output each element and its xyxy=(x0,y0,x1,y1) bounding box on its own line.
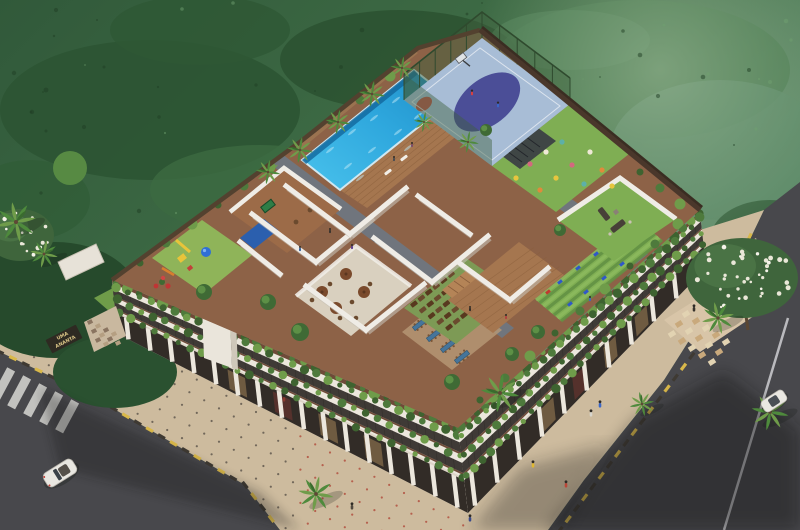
pedestrian xyxy=(590,409,593,416)
paving-dot xyxy=(181,404,183,406)
hedge xyxy=(576,307,585,316)
paving-dot xyxy=(314,510,316,512)
hanging-plants xyxy=(160,304,167,311)
blossom xyxy=(706,272,709,275)
blossom xyxy=(785,280,790,285)
hanging-plants xyxy=(409,431,416,438)
paving-dot xyxy=(255,478,257,480)
hanging-plants xyxy=(242,338,250,346)
hanging-plants xyxy=(671,237,679,245)
table xyxy=(368,282,373,287)
hanging-plants xyxy=(566,335,571,340)
hanging-plants xyxy=(269,382,277,390)
hanging-plants xyxy=(113,294,122,303)
hanging-plants xyxy=(244,355,251,362)
hanging-plants xyxy=(324,376,333,385)
hanging-plants xyxy=(626,315,632,321)
hanging-plants xyxy=(293,395,300,402)
roof-person xyxy=(299,246,301,251)
hedge xyxy=(675,199,686,210)
hanging-plants xyxy=(374,415,381,422)
paving-dot xyxy=(285,527,287,529)
blossom xyxy=(723,277,726,280)
blossom xyxy=(707,258,712,263)
chair xyxy=(463,349,465,351)
bean-bag xyxy=(609,183,614,188)
blossom xyxy=(746,277,750,281)
hanging-plants xyxy=(695,212,705,222)
hanging-plants xyxy=(466,423,473,430)
hanging-plants xyxy=(394,406,403,415)
blossom xyxy=(26,250,29,253)
paving-dot xyxy=(203,433,205,435)
chair xyxy=(463,359,465,361)
blossom xyxy=(756,252,759,255)
paving-dot xyxy=(233,415,235,417)
hanging-plants xyxy=(281,387,288,394)
paving-dot xyxy=(248,424,250,426)
chair xyxy=(421,326,423,328)
hanging-plants xyxy=(477,436,484,443)
paving-dot xyxy=(211,387,213,389)
hanging-plants xyxy=(682,245,688,251)
paving-dot xyxy=(248,457,250,459)
bean-bag xyxy=(553,175,558,180)
hanging-plants xyxy=(372,397,378,403)
bean-bag xyxy=(527,161,532,166)
blossom xyxy=(695,277,700,282)
chair xyxy=(417,329,419,331)
hedge xyxy=(627,263,634,270)
hanging-plants xyxy=(666,272,675,281)
arcade-column xyxy=(148,328,151,351)
hanging-plants xyxy=(406,412,415,421)
hanging-plants xyxy=(650,289,658,297)
roof-person xyxy=(505,314,507,319)
roof-person xyxy=(469,306,471,311)
blossom xyxy=(722,245,727,250)
blossom xyxy=(20,242,23,245)
hanging-plants xyxy=(197,334,203,340)
hanging-plants xyxy=(186,345,194,353)
paving-dot xyxy=(351,514,353,516)
hanging-plants xyxy=(138,309,144,315)
hanging-plants xyxy=(559,359,565,365)
hanging-plants xyxy=(149,313,158,322)
hedge xyxy=(637,169,644,176)
paving-dot xyxy=(299,469,301,471)
hanging-plants xyxy=(672,251,682,261)
hanging-plants xyxy=(176,340,181,345)
chair xyxy=(467,356,469,358)
blossom xyxy=(768,256,773,261)
bean-bag xyxy=(599,167,604,172)
hanging-plants xyxy=(383,400,391,408)
hanging-plants xyxy=(577,360,584,367)
paving-dot xyxy=(359,468,361,470)
hanging-plants xyxy=(420,435,429,444)
pedestrian xyxy=(469,514,472,521)
paving-dot xyxy=(225,395,227,397)
hanging-plants xyxy=(532,362,539,369)
hanging-plants xyxy=(316,390,322,396)
paving-dot xyxy=(188,391,190,393)
paving-dot xyxy=(137,413,139,415)
paving-dot xyxy=(307,456,309,458)
hanging-plants xyxy=(312,369,320,377)
hanging-plants xyxy=(184,328,193,337)
blossom xyxy=(784,258,789,263)
hedge xyxy=(651,240,660,249)
blossom xyxy=(5,228,8,231)
chair xyxy=(445,342,447,344)
paving-dot xyxy=(410,513,412,515)
hanging-plants xyxy=(365,427,371,433)
paving-dot xyxy=(270,486,272,488)
hanging-plants xyxy=(362,409,370,417)
blossom xyxy=(41,241,45,245)
roof-person xyxy=(393,156,395,161)
hanging-plants xyxy=(640,282,649,291)
blossom xyxy=(765,269,768,272)
hanging-plants xyxy=(605,296,614,305)
paving-dot xyxy=(181,370,183,372)
hanging-plants xyxy=(610,329,617,336)
hanging-plants xyxy=(534,382,540,388)
paving-dot xyxy=(255,411,257,413)
paving-dot xyxy=(425,521,427,523)
hanging-plants xyxy=(400,445,407,452)
hanging-plants xyxy=(463,472,470,479)
hanging-plants xyxy=(256,363,263,370)
hanging-plants xyxy=(352,423,360,431)
chair xyxy=(417,320,419,322)
hanging-plants xyxy=(575,344,581,350)
bean-bag xyxy=(537,187,542,192)
hanging-plants xyxy=(674,264,683,273)
hanging-plants xyxy=(529,409,534,414)
paving-dot xyxy=(447,516,449,518)
hanging-plants xyxy=(125,302,133,310)
paving-dot xyxy=(336,472,338,474)
paving-dot xyxy=(336,505,338,507)
blossom xyxy=(44,225,48,229)
chair xyxy=(414,323,416,325)
hanging-plants xyxy=(540,356,548,364)
hanging-plants xyxy=(623,296,632,305)
hanging-plants xyxy=(259,378,264,383)
paving-dot xyxy=(373,476,375,478)
hanging-plants xyxy=(337,382,342,387)
hanging-plants xyxy=(137,294,143,300)
hanging-plants xyxy=(349,387,355,393)
paving-dot xyxy=(262,465,264,467)
hanging-plants xyxy=(245,370,254,379)
paving-dot xyxy=(255,444,257,446)
paving-dot xyxy=(299,435,301,437)
arcade-column xyxy=(257,380,260,407)
paving-dot xyxy=(307,523,309,525)
hanging-plants xyxy=(550,367,557,374)
hedge xyxy=(552,330,559,337)
hanging-plants xyxy=(174,325,180,331)
blossom xyxy=(765,264,769,268)
hanging-plants xyxy=(642,298,650,306)
hanging-plants xyxy=(151,328,157,334)
blossom xyxy=(742,280,746,284)
hanging-plants xyxy=(516,381,522,387)
hanging-plants xyxy=(461,452,467,458)
paving-dot xyxy=(233,449,235,451)
hanging-plants xyxy=(300,365,309,374)
hedge xyxy=(477,397,484,404)
hanging-plants xyxy=(341,417,346,422)
hanging-plants xyxy=(329,412,336,419)
hanging-plants xyxy=(470,464,479,473)
hanging-plants xyxy=(441,425,450,434)
hanging-plants xyxy=(448,467,454,473)
paving-dot xyxy=(196,412,198,414)
paving-dot xyxy=(225,428,227,430)
hanging-plants xyxy=(592,331,597,336)
roof-person xyxy=(329,228,331,233)
pedestrian xyxy=(283,394,286,401)
hanging-plants xyxy=(148,298,155,305)
hanging-plants xyxy=(524,370,530,376)
hanging-plants xyxy=(419,418,426,425)
bean-bag xyxy=(543,149,548,154)
pedestrian xyxy=(351,502,354,509)
hanging-plants xyxy=(291,379,299,387)
hanging-plants xyxy=(435,461,443,469)
paving-dot xyxy=(344,526,346,528)
blossom xyxy=(761,292,764,295)
court-player xyxy=(497,102,499,108)
paving-dot xyxy=(314,443,316,445)
paving-dot xyxy=(166,396,168,398)
hanging-plants xyxy=(638,265,646,273)
hanging-plants xyxy=(424,457,430,463)
paving-dot xyxy=(433,508,435,510)
hanging-plants xyxy=(633,305,641,313)
hanging-plants xyxy=(680,232,686,238)
paving-dot xyxy=(225,461,227,463)
paving-dot xyxy=(366,488,368,490)
paving-dot xyxy=(403,525,405,527)
paving-dot xyxy=(344,460,346,462)
blossom xyxy=(758,273,761,276)
paving-dot xyxy=(292,481,294,483)
hanging-plants xyxy=(551,384,560,393)
hanging-plants xyxy=(139,322,146,329)
arcade-column xyxy=(651,296,654,321)
paving-dot xyxy=(203,399,205,401)
hanging-plants xyxy=(161,317,169,325)
chair xyxy=(449,348,451,350)
hanging-plants xyxy=(583,337,591,345)
paving-dot xyxy=(218,407,220,409)
dome-climber xyxy=(201,247,211,257)
paving-dot xyxy=(418,500,420,502)
hanging-plants xyxy=(305,401,312,408)
hanging-plants xyxy=(581,318,589,326)
hanging-plants xyxy=(413,451,418,456)
paving-dot xyxy=(322,464,324,466)
hanging-plants xyxy=(486,447,495,456)
court-player xyxy=(471,90,473,96)
hanging-plants xyxy=(125,290,131,296)
paving-dot xyxy=(292,448,294,450)
paving-dot xyxy=(396,505,398,507)
hanging-plants xyxy=(317,405,324,412)
hanging-plants xyxy=(111,283,120,292)
paving-dot xyxy=(262,432,264,434)
pedestrian xyxy=(565,480,568,487)
paving-dot xyxy=(270,452,272,454)
paving-dot xyxy=(359,501,361,503)
hanging-plants xyxy=(303,382,309,388)
chair xyxy=(431,340,433,342)
paving-dot xyxy=(344,493,346,495)
blossom xyxy=(720,306,722,308)
hanging-plants xyxy=(658,281,665,288)
paving-dot xyxy=(329,451,331,453)
hanging-plants xyxy=(683,258,689,264)
hanging-plants xyxy=(655,253,662,260)
hanging-plants xyxy=(183,314,191,322)
paving-dot xyxy=(351,480,353,482)
hanging-plants xyxy=(163,333,169,339)
chair xyxy=(456,356,458,358)
hanging-plants xyxy=(278,357,284,363)
arcade-column xyxy=(584,362,587,390)
hanging-plants xyxy=(536,400,543,407)
blossom xyxy=(723,274,726,277)
hanging-plants xyxy=(699,231,704,236)
blossom xyxy=(736,287,739,290)
hanging-plants xyxy=(492,421,501,430)
hanging-plants xyxy=(545,394,551,400)
hanging-plants xyxy=(376,434,383,441)
hanging-plants xyxy=(589,310,597,318)
hanging-plants xyxy=(567,353,574,360)
hanging-plants xyxy=(289,360,296,367)
hanging-plants xyxy=(474,416,482,424)
hanging-plants xyxy=(398,427,404,433)
hanging-plants xyxy=(543,376,549,382)
blossom xyxy=(743,295,748,300)
paving-dot xyxy=(373,509,375,511)
hanging-plants xyxy=(504,434,510,440)
hanging-plants xyxy=(599,321,607,329)
blossom xyxy=(760,288,763,291)
hanging-plants xyxy=(385,421,393,429)
hanging-plants xyxy=(548,349,556,357)
blossom xyxy=(719,288,722,291)
roof-person xyxy=(589,296,591,301)
hanging-plants xyxy=(646,259,655,268)
pedestrian xyxy=(532,460,535,467)
paving-dot xyxy=(174,416,176,418)
arcade-column xyxy=(170,338,173,362)
chair xyxy=(459,353,461,355)
hanging-plants xyxy=(253,344,262,353)
paving-dot xyxy=(366,522,368,524)
arcade-column xyxy=(192,349,195,373)
paving-dot xyxy=(388,484,390,486)
paving-dot xyxy=(388,517,390,519)
hanging-plants xyxy=(387,439,395,447)
paving-dot xyxy=(240,403,242,405)
hanging-plants xyxy=(689,225,695,231)
paving-dot xyxy=(218,441,220,443)
blossom xyxy=(739,255,742,258)
hanging-plants xyxy=(486,428,492,434)
chair xyxy=(439,334,441,336)
chair xyxy=(459,362,461,364)
hanging-plants xyxy=(359,392,367,400)
table xyxy=(350,300,355,305)
hanging-plants xyxy=(327,393,333,399)
paving-dot xyxy=(285,427,287,429)
pedestrian xyxy=(599,400,602,407)
blossom xyxy=(777,257,782,262)
hanging-plants xyxy=(623,283,628,288)
hanging-plants xyxy=(430,422,439,431)
blossom xyxy=(738,297,741,300)
paving-dot xyxy=(381,496,383,498)
hanging-plants xyxy=(444,448,453,457)
hanging-plants xyxy=(279,371,288,380)
hanging-plants xyxy=(616,305,622,311)
paving-dot xyxy=(48,364,50,366)
paving-dot xyxy=(196,379,198,381)
paving-dot xyxy=(270,419,272,421)
round-tree xyxy=(53,151,87,185)
blossom xyxy=(761,276,764,279)
paving-dot xyxy=(462,524,464,526)
hanging-plants xyxy=(434,442,439,447)
paving-dot xyxy=(285,494,287,496)
hanging-plants xyxy=(512,425,518,431)
pedestrian xyxy=(693,304,696,311)
hanging-plants xyxy=(607,312,615,320)
paving-dot xyxy=(292,514,294,516)
chair xyxy=(428,334,430,336)
blossom xyxy=(786,285,791,290)
bean-bag xyxy=(559,139,564,144)
table xyxy=(310,298,315,303)
hanging-plants xyxy=(568,369,577,378)
hanging-plants xyxy=(662,244,671,253)
hanging-plants xyxy=(556,340,564,348)
paving-dot xyxy=(159,408,161,410)
hanging-plants xyxy=(602,336,608,342)
paving-dot xyxy=(329,518,331,520)
hanging-plants xyxy=(616,319,625,328)
blossom xyxy=(767,261,771,265)
paving-dot xyxy=(285,460,287,462)
blossom xyxy=(726,294,730,298)
hanging-plants xyxy=(597,303,605,311)
arcade-column xyxy=(629,318,632,344)
hanging-plants xyxy=(699,241,706,248)
paving-dot xyxy=(196,445,198,447)
arcade-column xyxy=(279,390,282,417)
hanging-plants xyxy=(194,317,202,325)
paving-dot xyxy=(240,436,242,438)
aerial-render: UMA ANANTA UMA ANANTA xyxy=(0,0,800,530)
